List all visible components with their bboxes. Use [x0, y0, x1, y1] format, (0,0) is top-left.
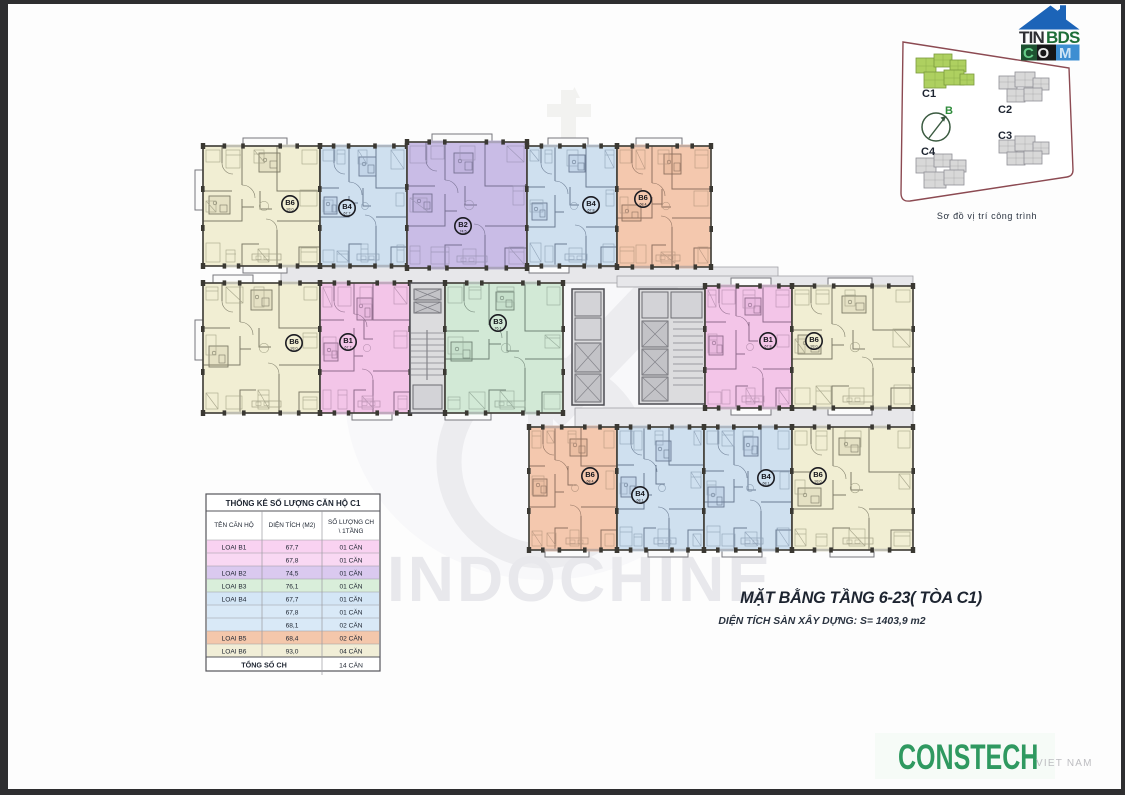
svg-text:B4: B4	[586, 199, 596, 208]
svg-text:B4: B4	[635, 489, 645, 498]
svg-text:67.8: 67.8	[588, 209, 595, 213]
svg-text:LOAI B6: LOAI B6	[222, 649, 247, 656]
svg-text:B4: B4	[342, 202, 352, 211]
svg-text:74,5: 74,5	[286, 571, 299, 578]
svg-text:01 CĂN: 01 CĂN	[339, 608, 362, 617]
svg-text:VIET NAM: VIET NAM	[1036, 758, 1093, 769]
svg-text:74.5: 74.5	[460, 230, 467, 234]
svg-text:93.0: 93.0	[287, 208, 294, 212]
svg-text:67,7: 67,7	[286, 597, 299, 604]
svg-text:C4: C4	[921, 146, 936, 158]
svg-text:MẶT BẰNG TẦNG 6-23( TÒA C1): MẶT BẰNG TẦNG 6-23( TÒA C1)	[740, 588, 982, 607]
svg-text:DIỆN TÍCH SÀN XÂY DỰNG: S= 140: DIỆN TÍCH SÀN XÂY DỰNG: S= 1403,9 m2	[718, 614, 925, 627]
svg-text:B6: B6	[809, 335, 819, 344]
svg-text:C: C	[1023, 45, 1034, 62]
svg-text:93,0: 93,0	[286, 649, 299, 656]
svg-text:LOAI B2: LOAI B2	[222, 571, 247, 578]
svg-text:01 CĂN: 01 CĂN	[339, 556, 362, 565]
svg-text:B1: B1	[763, 335, 773, 344]
svg-text:LOAI B4: LOAI B4	[222, 597, 247, 604]
svg-text:B6: B6	[638, 193, 648, 202]
svg-text:Sơ đồ vị trí công trình: Sơ đồ vị trí công trình	[937, 211, 1037, 221]
svg-text:B6: B6	[285, 198, 295, 207]
svg-text:01 CĂN: 01 CĂN	[339, 569, 362, 578]
svg-text:C3: C3	[998, 130, 1012, 142]
svg-text:04 CĂN: 04 CĂN	[339, 647, 362, 656]
svg-text:93.0: 93.0	[291, 347, 298, 351]
svg-text:76,1: 76,1	[286, 584, 299, 591]
svg-text:B4: B4	[761, 472, 771, 481]
svg-text:M: M	[1059, 45, 1072, 62]
svg-text:93.0: 93.0	[811, 345, 818, 349]
svg-text:B1: B1	[343, 336, 353, 345]
svg-text:TÊN CĂN HỘ: TÊN CĂN HỘ	[214, 520, 253, 529]
svg-text:67,7: 67,7	[286, 545, 299, 552]
svg-text:68.1: 68.1	[637, 499, 644, 503]
svg-text:68.4: 68.4	[640, 203, 647, 207]
svg-text:CONSTECH: CONSTECH	[898, 738, 1038, 777]
svg-text:DIỆN TÍCH (M2): DIỆN TÍCH (M2)	[269, 520, 316, 529]
svg-text:TỔNG SỐ CH: TỔNG SỐ CH	[241, 660, 287, 670]
svg-text:LOAI B5: LOAI B5	[222, 636, 247, 643]
svg-text:B2: B2	[458, 220, 468, 229]
svg-text:B3: B3	[493, 317, 503, 326]
svg-text:67.8: 67.8	[765, 345, 772, 349]
svg-text:02 CĂN: 02 CĂN	[339, 621, 362, 630]
svg-text:68.1: 68.1	[763, 482, 770, 486]
svg-text:14 CĂN: 14 CĂN	[339, 661, 363, 670]
svg-text:02 CĂN: 02 CĂN	[339, 634, 362, 643]
svg-text:B6: B6	[585, 470, 595, 479]
svg-text:67.7: 67.7	[345, 346, 352, 350]
svg-text:LOAI B3: LOAI B3	[222, 584, 247, 591]
svg-text:LOAI B1: LOAI B1	[222, 545, 247, 552]
svg-text:67,8: 67,8	[286, 558, 299, 565]
svg-text:B6: B6	[813, 470, 823, 479]
svg-text:01 CĂN: 01 CĂN	[339, 595, 362, 604]
svg-text:O: O	[1038, 45, 1050, 62]
svg-text:THỐNG KÊ SỐ LƯỢNG CĂN HỘ C1: THỐNG KÊ SỐ LƯỢNG CĂN HỘ C1	[226, 498, 361, 508]
svg-text:C2: C2	[998, 104, 1012, 116]
svg-text:68,4: 68,4	[286, 636, 299, 643]
svg-text:B: B	[945, 105, 953, 117]
svg-text:67.7: 67.7	[344, 212, 351, 216]
svg-text:01 CĂN: 01 CĂN	[339, 543, 362, 552]
svg-text:93.0: 93.0	[815, 480, 822, 484]
svg-text:B6: B6	[289, 337, 299, 346]
svg-text:C1: C1	[922, 88, 936, 100]
svg-text:76.1: 76.1	[495, 327, 502, 331]
svg-text:68.4: 68.4	[587, 480, 594, 484]
svg-text:01 CĂN: 01 CĂN	[339, 582, 362, 591]
svg-text:67,8: 67,8	[286, 610, 299, 617]
svg-text:68,1: 68,1	[286, 623, 299, 630]
